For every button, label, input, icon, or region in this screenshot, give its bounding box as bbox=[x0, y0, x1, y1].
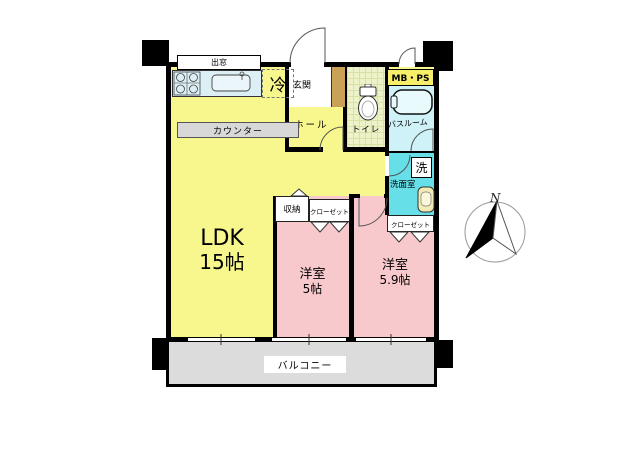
counter-label: カウンター bbox=[213, 124, 263, 137]
compass-north-label: N bbox=[489, 191, 501, 205]
closet-bedroom2: クローゼット bbox=[387, 215, 434, 232]
wall-bath-washroom bbox=[389, 151, 434, 153]
washroom-door-opening bbox=[385, 156, 389, 176]
wall-bath-left bbox=[385, 67, 389, 215]
hall-label: ホール bbox=[294, 121, 329, 132]
compass-icon: N bbox=[460, 190, 530, 266]
bedroom2-name: 洋室 bbox=[382, 259, 408, 274]
bedroom1-label: 洋室 5帖 bbox=[285, 268, 340, 297]
refrigerator-label: 冷 bbox=[270, 71, 287, 96]
closet-bedroom2-label: クローゼット bbox=[391, 219, 430, 229]
bedroom2-label: 洋室 5.9帖 bbox=[365, 259, 425, 288]
toilet-floor bbox=[347, 67, 385, 151]
balcony-label: バルコニー bbox=[278, 357, 333, 372]
washer-label: 洗 bbox=[415, 159, 427, 176]
shoe-cabinet bbox=[331, 67, 345, 107]
storage-label: 収納 bbox=[283, 203, 300, 215]
bedroom2-size: 5.9帖 bbox=[379, 274, 410, 288]
refrigerator-space: 冷 bbox=[262, 69, 294, 98]
service-door-opening bbox=[399, 62, 415, 67]
kitchen-counter bbox=[172, 70, 262, 97]
meter-box-label: MB・PS bbox=[392, 71, 430, 84]
closet-bedroom1: クローゼット bbox=[309, 199, 350, 222]
washroom-label: 洗面室 bbox=[390, 181, 416, 191]
washing-machine: 洗 bbox=[411, 157, 432, 178]
wall-bedroom2-top-stub bbox=[354, 194, 360, 198]
balcony-label-box: バルコニー bbox=[264, 356, 346, 373]
bay-window: 出窓 bbox=[177, 55, 261, 70]
closet-bedroom1-label: クローゼット bbox=[310, 206, 349, 216]
window-bedroom2 bbox=[356, 337, 426, 342]
wall-bedroom2-top-hinge bbox=[384, 194, 389, 198]
bay-window-label: 出窓 bbox=[211, 57, 227, 68]
bedroom1-size: 5帖 bbox=[303, 283, 323, 297]
ldk-name: LDK bbox=[200, 226, 244, 251]
ldk-label: LDK 15帖 bbox=[172, 226, 272, 274]
counter-bar: カウンター bbox=[177, 122, 299, 138]
wall-toilet-bottom bbox=[343, 147, 389, 152]
ldk-size: 15帖 bbox=[199, 251, 244, 274]
floor-plan: 玄関 ホール MB・PS バスルーム 洗 洗面室 トイレ bbox=[0, 0, 640, 453]
storage-closet: 収納 bbox=[275, 196, 309, 222]
pillar-top-left bbox=[142, 40, 169, 66]
toilet-label: トイレ bbox=[347, 126, 385, 136]
window-bedroom1 bbox=[272, 337, 346, 342]
meter-box: MB・PS bbox=[387, 69, 434, 86]
wall-hall-bottom bbox=[285, 147, 323, 152]
entrance-label: 玄関 bbox=[293, 81, 311, 91]
bedroom1-name: 洋室 bbox=[299, 268, 325, 283]
window-ldk bbox=[188, 337, 255, 342]
